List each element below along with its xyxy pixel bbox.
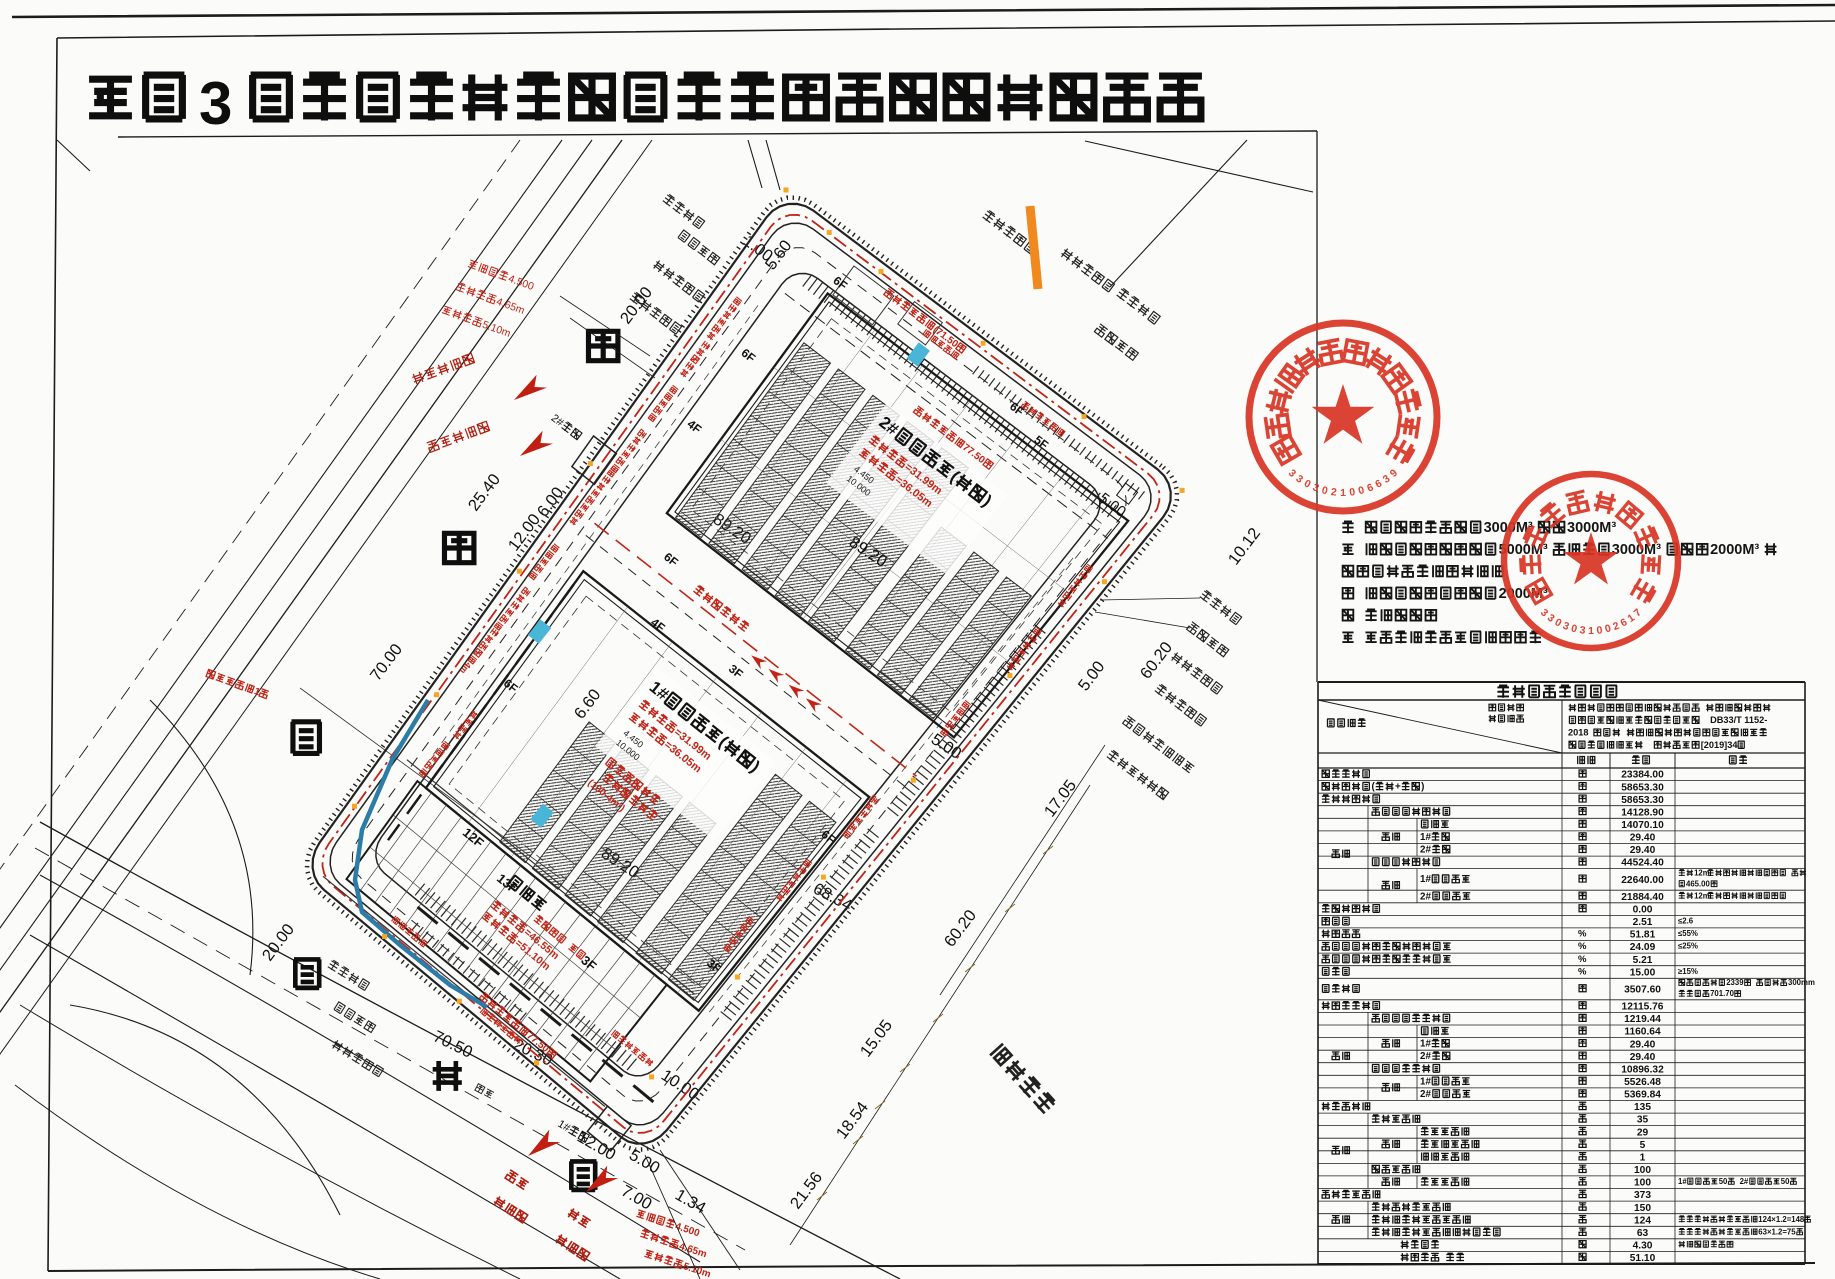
svg-text:24.09: 24.09	[1630, 942, 1656, 953]
svg-text:100: 100	[1634, 1165, 1651, 1176]
svg-text:29.40: 29.40	[1630, 845, 1656, 856]
svg-text:%: %	[1578, 966, 1587, 977]
svg-text:23384.00: 23384.00	[1621, 770, 1664, 781]
svg-text:%: %	[1578, 929, 1587, 940]
svg-text:2018: 2018	[1568, 728, 1588, 738]
svg-text:+: +	[1395, 782, 1401, 793]
svg-text:29.40: 29.40	[1630, 1039, 1656, 1050]
svg-text:5: 5	[1640, 1140, 1646, 1151]
svg-text:≤2.6: ≤2.6	[1678, 916, 1694, 925]
svg-text:63×1.2=75: 63×1.2=75	[1758, 1227, 1796, 1236]
svg-text:35: 35	[1637, 1115, 1649, 1126]
svg-text:63: 63	[1637, 1228, 1649, 1239]
svg-text:51.10: 51.10	[1630, 1253, 1656, 1264]
svg-text:1#: 1#	[1420, 1076, 1431, 1087]
svg-text:29.40: 29.40	[1630, 833, 1656, 844]
svg-text:1#: 1#	[1420, 874, 1431, 885]
svg-text:300mm: 300mm	[1788, 978, 1815, 987]
svg-text:58653.30: 58653.30	[1621, 795, 1664, 806]
svg-text:124: 124	[1634, 1215, 1651, 1226]
svg-text:1219.44: 1219.44	[1624, 1014, 1661, 1025]
svg-text:100: 100	[1634, 1178, 1651, 1189]
svg-text:1: 1	[1588, 625, 1594, 637]
svg-text:1#: 1#	[1420, 1039, 1431, 1050]
svg-text:5369.84: 5369.84	[1624, 1090, 1661, 1101]
svg-text:3000M³: 3000M³	[1567, 520, 1616, 536]
svg-text:12m: 12m	[1694, 891, 1710, 900]
svg-text:4.30: 4.30	[1633, 1241, 1653, 1252]
svg-text:124×1.2=148: 124×1.2=148	[1758, 1215, 1805, 1224]
svg-text:44524.40: 44524.40	[1621, 858, 1664, 869]
svg-text:10896.32: 10896.32	[1621, 1064, 1664, 1075]
svg-text:2339: 2339	[1726, 978, 1744, 987]
svg-text:51.81: 51.81	[1630, 930, 1656, 941]
svg-text:12115.76: 12115.76	[1622, 1002, 1664, 1013]
svg-text:150: 150	[1634, 1203, 1651, 1214]
svg-text:58653.30: 58653.30	[1621, 782, 1664, 793]
svg-text:): )	[1421, 782, 1424, 793]
svg-text:3507.60: 3507.60	[1624, 985, 1661, 996]
svg-text:2#: 2#	[1420, 845, 1431, 856]
svg-text:3000M³: 3000M³	[1612, 542, 1661, 558]
svg-text:2#: 2#	[1740, 1177, 1749, 1186]
svg-text:%: %	[1578, 941, 1587, 952]
svg-text:1#: 1#	[1678, 1177, 1687, 1186]
svg-text:2.51: 2.51	[1633, 917, 1653, 928]
svg-text:5526.48: 5526.48	[1624, 1077, 1661, 1088]
svg-text:373: 373	[1634, 1190, 1651, 1201]
svg-text:701.70: 701.70	[1710, 989, 1735, 998]
svg-text:2#: 2#	[1420, 1089, 1431, 1100]
svg-text:29.40: 29.40	[1630, 1052, 1656, 1063]
svg-text:15.00: 15.00	[1630, 967, 1656, 978]
svg-text:5.21: 5.21	[1633, 955, 1653, 966]
svg-text:2000M³: 2000M³	[1710, 542, 1759, 558]
svg-text:465.00: 465.00	[1686, 879, 1711, 888]
svg-text:2#: 2#	[1420, 891, 1431, 902]
svg-text:≥15%: ≥15%	[1678, 967, 1698, 976]
svg-text:1: 1	[1640, 1153, 1646, 1164]
svg-text:21884.40: 21884.40	[1621, 892, 1664, 903]
svg-text:135: 135	[1634, 1102, 1651, 1113]
svg-text:2#: 2#	[1420, 1051, 1431, 1062]
svg-text:14128.90: 14128.90	[1621, 807, 1664, 818]
svg-text:≤55%: ≤55%	[1678, 929, 1698, 938]
svg-text:50: 50	[1719, 1177, 1728, 1186]
svg-text:[2019]34: [2019]34	[1701, 740, 1739, 750]
svg-text:22640.00: 22640.00	[1621, 875, 1664, 886]
svg-text:12m: 12m	[1694, 868, 1710, 877]
svg-text:DB33/T 1152-: DB33/T 1152-	[1710, 715, 1767, 725]
svg-text:%: %	[1578, 954, 1587, 965]
svg-text:14070.10: 14070.10	[1621, 820, 1664, 831]
svg-text:1#: 1#	[1420, 832, 1431, 843]
svg-text:0.00: 0.00	[1633, 905, 1653, 916]
svg-text:≤25%: ≤25%	[1678, 942, 1698, 951]
svg-text:29: 29	[1637, 1127, 1649, 1138]
svg-text:3: 3	[199, 70, 232, 137]
svg-text:1: 1	[1340, 487, 1346, 499]
svg-text:50: 50	[1781, 1177, 1790, 1186]
svg-text:1160.64: 1160.64	[1624, 1027, 1661, 1038]
